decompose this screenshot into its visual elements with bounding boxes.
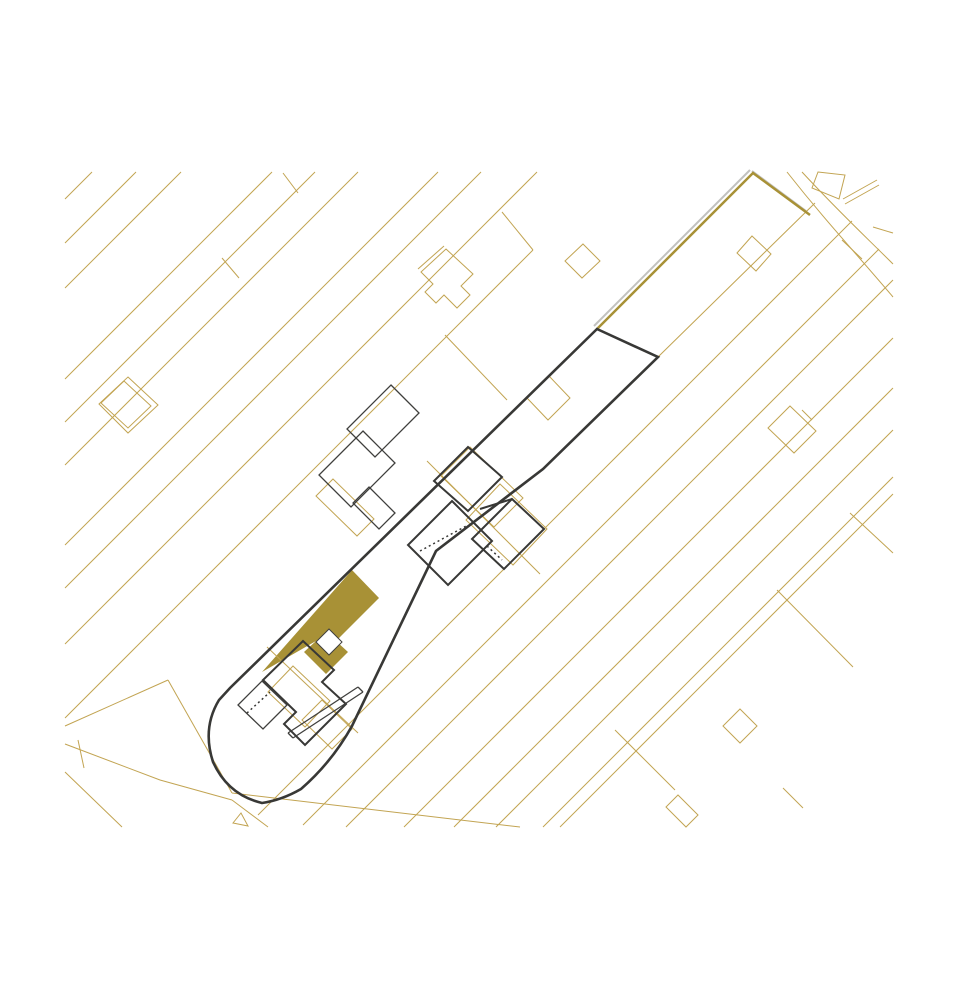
parcel-cross-connectors-path [777, 590, 853, 667]
neighbor-building-north-path [319, 431, 395, 507]
parcel-lines-upper-left-path [65, 172, 481, 588]
road-fork-bottom-left-path [233, 813, 248, 826]
neighbor-small-buildings-path [421, 249, 473, 308]
existing-building-middle [408, 447, 544, 585]
parcel-lines-lower-right-path [404, 338, 893, 827]
road-top-right-path [812, 172, 845, 199]
parcel-cross-connectors [222, 173, 893, 808]
parcel-shadow [594, 170, 806, 326]
existing-building-south-dashed-path [247, 692, 270, 713]
parcel-lines-upper-left-path [65, 172, 92, 199]
parcel-cross-connectors-path [850, 513, 893, 553]
site-plan-drawing [0, 0, 960, 1000]
parcel-lines-upper-left-path [65, 172, 537, 644]
neighbor-small-buildings-path [737, 236, 771, 271]
site-plan-page [0, 0, 960, 1000]
road-fork-bottom-left-path [65, 772, 122, 827]
parcel-lines-lower-right-path [543, 477, 893, 827]
plan-content [65, 170, 893, 827]
parcel-shadow-path [594, 170, 750, 326]
road-fork-bottom-left [65, 680, 520, 827]
neighbor-building-north-path [353, 487, 395, 529]
parcel-cross-connectors-path [783, 788, 803, 808]
road-fork-bottom-left-path [65, 744, 232, 800]
parcel-cross-connectors-path [502, 212, 533, 250]
existing-building-middle-dashed-path [420, 525, 468, 551]
road-top-right-path [802, 172, 893, 264]
old-footprint-overlays [267, 447, 547, 749]
neighbor-small-buildings-path [527, 376, 570, 420]
parcel-lines-upper-left-path [65, 172, 136, 243]
road-top-right-path [787, 172, 893, 297]
road-top-right-path [658, 203, 815, 357]
parcel-cross-connectors-path [222, 258, 239, 278]
neighbor-small-buildings-path [565, 244, 600, 278]
old-footprint-overlays-path [316, 479, 374, 536]
existing-building-middle-path [472, 499, 544, 569]
parcel-cross-connectors-path [445, 335, 507, 400]
parcel-lines-upper-left-path [65, 172, 438, 545]
road-fork-bottom-left-path [232, 793, 520, 827]
existing-building-south-annex-path [288, 733, 293, 738]
neighbor-small-buildings-path [723, 709, 757, 743]
road-fork-bottom-left-path [78, 740, 84, 768]
parcel-cross-connectors-path [615, 730, 675, 790]
parcel-cross-connectors-path [873, 227, 893, 233]
parcel-lines-upper-left-path [65, 172, 181, 288]
neighbor-building-north [319, 385, 419, 529]
existing-building-south-annex-path [358, 687, 363, 692]
parcel-lines-lower-right [258, 221, 893, 827]
existing-building-south-annex-path [238, 681, 287, 729]
neighbor-small-buildings-path [768, 406, 816, 453]
neighbor-small-buildings-path [666, 795, 698, 827]
existing-building-south-dashed [247, 692, 270, 713]
parcel-lines-upper-left-path [65, 172, 272, 379]
emphasized-parcel-edge [597, 173, 810, 329]
road-top-right [658, 172, 893, 357]
neighbor-building-north-path [347, 385, 419, 457]
road-top-right-path [842, 240, 862, 259]
parcel-cross-connectors-path [283, 173, 298, 193]
parcel-lines-lower-right-path [346, 280, 893, 827]
parcel-lines-lower-right-path [560, 494, 893, 827]
neighbor-small-buildings-path [418, 246, 444, 269]
parcel-lines-upper-left-path [65, 172, 315, 422]
parcel-lines-upper-left-path [65, 172, 358, 465]
emphasized-parcel-edge-path [597, 173, 810, 329]
neighbor-small-buildings [99, 236, 816, 827]
parcel-lines-lower-right-path [496, 430, 893, 827]
